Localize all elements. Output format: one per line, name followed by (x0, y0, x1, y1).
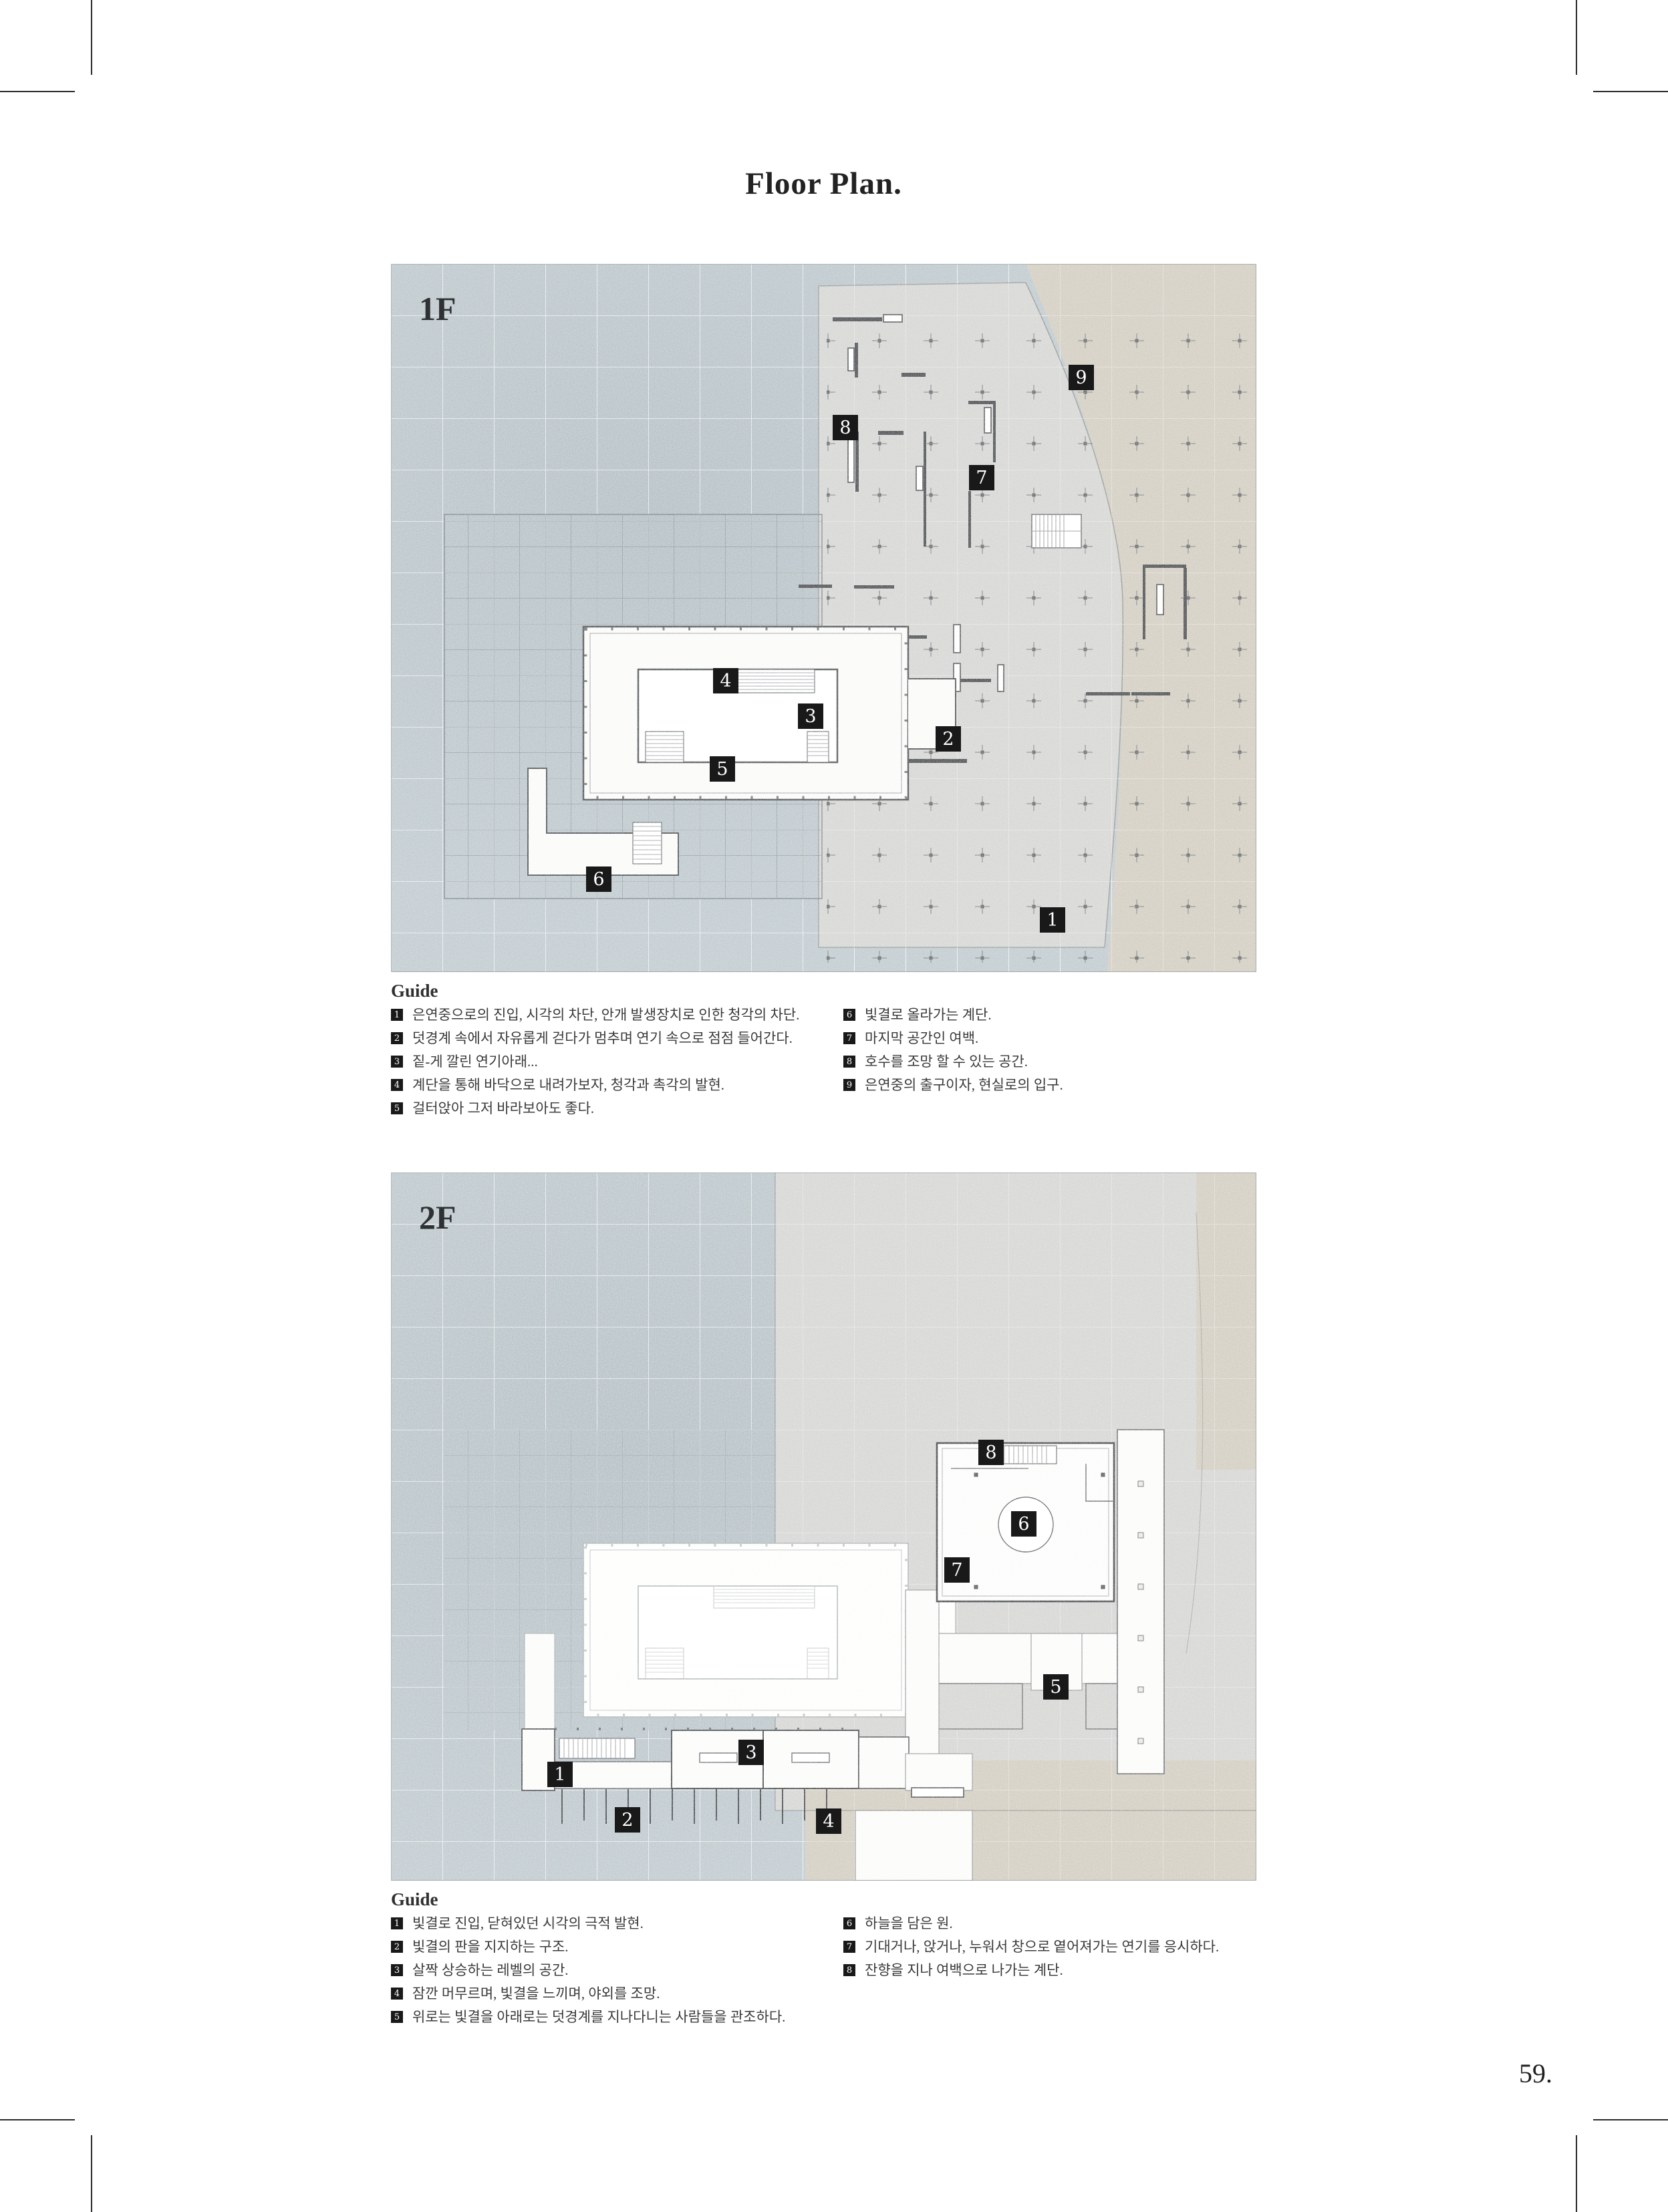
guide-item-number: 2 (391, 1941, 403, 1953)
page-number: 59. (1496, 2058, 1576, 2089)
guide-item: 2빛결의 판을 지지하는 구조. (391, 1939, 825, 1963)
guide-item: 3살짝 상승하는 레벨의 공간. (391, 1963, 825, 1986)
floor2-guide-right-column: 6하늘을 담은 원. 7기대거나, 앉거나, 누워서 창으로 옅어져가는 연기를… (843, 1916, 1256, 1986)
guide-item-text: 잔향을 지나 여백으로 나가는 계단. (865, 1963, 1063, 1978)
guide-item: 5위로는 빛결을 아래로는 덧경계를 지나다니는 사람들을 관조하다. (391, 2010, 825, 2033)
cropmark-bottom-right-v (1576, 2135, 1577, 2212)
floor1-guide-right-column: 6빛결로 올라가는 계단. 7마지막 공간인 여백. 8호수를 조망 할 수 있… (843, 1007, 1256, 1101)
guide-item: 1빛결로 진입, 닫혀있던 시각의 극적 발현. (391, 1916, 825, 1939)
cropmark-bottom-right-h (1593, 2119, 1668, 2120)
plan1-marker-5: 5 (710, 756, 735, 782)
cropmark-top-right-v (1576, 0, 1577, 75)
guide-item-number: 2 (391, 1032, 403, 1044)
guide-item-text: 걸터앉아 그저 바라보아도 좋다. (412, 1101, 594, 1116)
guide-item-text: 짙-게 깔린 연기아래... (412, 1054, 538, 1070)
plan2-marker-3: 3 (738, 1740, 764, 1765)
guide-item: 5걸터앉아 그저 바라보아도 좋다. (391, 1101, 825, 1124)
cropmark-bottom-left-v (91, 2135, 92, 2212)
floor2-guide: Guide 1빛결로 진입, 닫혀있던 시각의 극적 발현. 2빛결의 판을 지… (391, 1889, 1256, 2063)
guide-item-text: 빛결의 판을 지지하는 구조. (412, 1939, 569, 1955)
guide-item-number: 6 (843, 1009, 855, 1021)
plan2-marker-6: 6 (1011, 1511, 1036, 1537)
guide-item-text: 은연중의 출구이자, 현실로의 입구. (865, 1078, 1063, 1093)
guide-item-text: 하늘을 담은 원. (865, 1916, 953, 1931)
plan1-marker-7: 7 (969, 465, 994, 490)
plan1-marker-3: 3 (798, 703, 823, 729)
guide-item-number: 7 (843, 1941, 855, 1953)
page-title: Floor Plan. (391, 166, 1256, 202)
guide-item: 7마지막 공간인 여백. (843, 1031, 1256, 1054)
plan1-marker-2: 2 (936, 726, 961, 752)
guide-item-text: 빛결로 진입, 닫혀있던 시각의 극적 발현. (412, 1916, 644, 1931)
plan1-marker-4: 4 (713, 668, 738, 693)
plan2-marker-7: 7 (944, 1557, 970, 1583)
plan1-marker-9: 9 (1069, 365, 1094, 390)
plan2-marker-4: 4 (816, 1808, 841, 1834)
guide-item: 8호수를 조망 할 수 있는 공간. (843, 1054, 1256, 1078)
guide-item-text: 마지막 공간인 여백. (865, 1031, 978, 1046)
floor2-label: 2F (419, 1198, 456, 1237)
floor2-guide-heading: Guide (391, 1889, 1256, 1910)
cropmark-bottom-left-h (0, 2119, 75, 2120)
guide-item-text: 기대거나, 앉거나, 누워서 창으로 옅어져가는 연기를 응시하다. (865, 1939, 1219, 1955)
guide-item-number: 9 (843, 1079, 855, 1091)
floor2-plan-drawing (391, 1172, 1256, 1881)
guide-item-text: 덧경계 속에서 자유롭게 걷다가 멈추며 연기 속으로 점점 들어간다. (412, 1031, 793, 1046)
guide-item-text: 은연중으로의 진입, 시각의 차단, 안개 발생장치로 인한 청각의 차단. (412, 1007, 799, 1023)
guide-item: 7기대거나, 앉거나, 누워서 창으로 옅어져가는 연기를 응시하다. (843, 1939, 1256, 1963)
guide-item-number: 5 (391, 2011, 403, 2023)
guide-item-number: 8 (843, 1056, 855, 1068)
guide-item-number: 1 (391, 1917, 403, 1929)
floor1-plan-panel: 1F 1 2 3 4 5 6 7 8 9 (391, 264, 1256, 972)
guide-item-number: 4 (391, 1988, 403, 2000)
guide-item-text: 계단을 통해 바닥으로 내려가보자, 청각과 촉각의 발현. (412, 1078, 724, 1093)
guide-item-number: 5 (391, 1102, 403, 1114)
plan2-marker-5: 5 (1043, 1674, 1069, 1700)
guide-item-number: 8 (843, 1964, 855, 1976)
guide-item-text: 살짝 상승하는 레벨의 공간. (412, 1963, 569, 1978)
plan2-marker-1: 1 (547, 1762, 573, 1787)
plan2-marker-2: 2 (615, 1807, 640, 1833)
guide-item-number: 6 (843, 1917, 855, 1929)
cropmark-top-left-h (0, 91, 75, 92)
guide-item-number: 7 (843, 1032, 855, 1044)
floor1-guide-heading: Guide (391, 981, 1256, 1001)
guide-item-number: 1 (391, 1009, 403, 1021)
cropmark-top-left-v (91, 0, 92, 75)
guide-item: 8잔향을 지나 여백으로 나가는 계단. (843, 1963, 1256, 1986)
guide-item: 9은연중의 출구이자, 현실로의 입구. (843, 1078, 1256, 1101)
guide-item-text: 빛결로 올라가는 계단. (865, 1007, 992, 1023)
portfolio-page: Floor Plan. (0, 0, 1668, 2212)
guide-item: 1은연중으로의 진입, 시각의 차단, 안개 발생장치로 인한 청각의 차단. (391, 1007, 825, 1031)
guide-item: 6하늘을 담은 원. (843, 1916, 1256, 1939)
floor1-label: 1F (419, 289, 456, 328)
plan1-marker-1: 1 (1040, 907, 1065, 933)
plan1-marker-8: 8 (833, 415, 858, 440)
plan2-marker-8: 8 (978, 1440, 1004, 1465)
guide-item: 6빛결로 올라가는 계단. (843, 1007, 1256, 1031)
guide-item-text: 호수를 조망 할 수 있는 공간. (865, 1054, 1028, 1070)
floor1-plan-drawing (391, 264, 1256, 972)
guide-item-number: 4 (391, 1079, 403, 1091)
floor2-guide-left-column: 1빛결로 진입, 닫혀있던 시각의 극적 발현. 2빛결의 판을 지지하는 구조… (391, 1916, 825, 2033)
floor2-plan-panel: 2F 1 2 3 4 5 6 7 8 (391, 1172, 1256, 1881)
cropmark-top-right-h (1593, 91, 1668, 92)
guide-item-number: 3 (391, 1056, 403, 1068)
guide-item: 4잠깐 머무르며, 빛결을 느끼며, 야외를 조망. (391, 1986, 825, 2010)
guide-item-text: 위로는 빛결을 아래로는 덧경계를 지나다니는 사람들을 관조하다. (412, 2010, 785, 2025)
plan1-marker-6: 6 (586, 866, 611, 892)
guide-item: 4계단을 통해 바닥으로 내려가보자, 청각과 촉각의 발현. (391, 1078, 825, 1101)
floor1-guide: Guide 1은연중으로의 진입, 시각의 차단, 안개 발생장치로 인한 청각… (391, 981, 1256, 1154)
guide-item: 3짙-게 깔린 연기아래... (391, 1054, 825, 1078)
guide-item-number: 3 (391, 1964, 403, 1976)
floor1-guide-left-column: 1은연중으로의 진입, 시각의 차단, 안개 발생장치로 인한 청각의 차단. … (391, 1007, 825, 1124)
guide-item: 2덧경계 속에서 자유롭게 걷다가 멈추며 연기 속으로 점점 들어간다. (391, 1031, 825, 1054)
guide-item-text: 잠깐 머무르며, 빛결을 느끼며, 야외를 조망. (412, 1986, 660, 2002)
